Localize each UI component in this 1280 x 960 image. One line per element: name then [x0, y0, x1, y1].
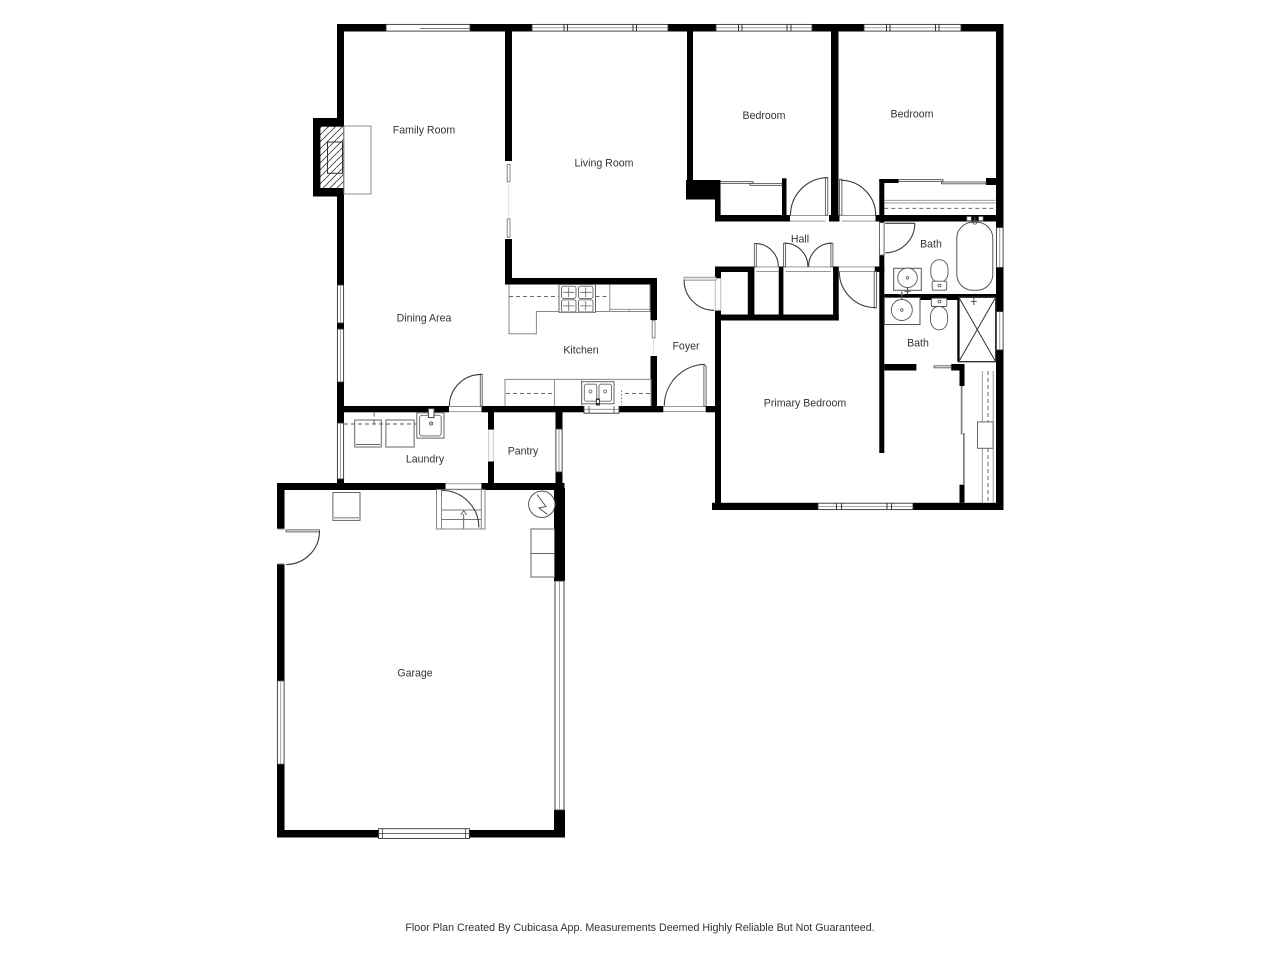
- svg-text:Bath: Bath: [907, 338, 929, 350]
- svg-text:Kitchen: Kitchen: [563, 345, 598, 357]
- svg-text:Floor Plan Created By Cubicasa: Floor Plan Created By Cubicasa App. Meas…: [405, 922, 874, 934]
- svg-text:Hall: Hall: [791, 234, 809, 246]
- svg-text:Living Room: Living Room: [575, 158, 634, 170]
- svg-text:Bath: Bath: [920, 239, 942, 251]
- svg-text:Bedroom: Bedroom: [743, 110, 786, 122]
- svg-text:Primary Bedroom: Primary Bedroom: [764, 398, 847, 410]
- svg-text:Bedroom: Bedroom: [891, 109, 934, 121]
- svg-text:Family Room: Family Room: [393, 125, 456, 137]
- svg-text:Garage: Garage: [397, 668, 432, 680]
- svg-text:Laundry: Laundry: [406, 454, 445, 466]
- svg-text:Dining Area: Dining Area: [397, 313, 452, 325]
- svg-text:Pantry: Pantry: [508, 446, 539, 458]
- svg-text:Foyer: Foyer: [672, 341, 700, 353]
